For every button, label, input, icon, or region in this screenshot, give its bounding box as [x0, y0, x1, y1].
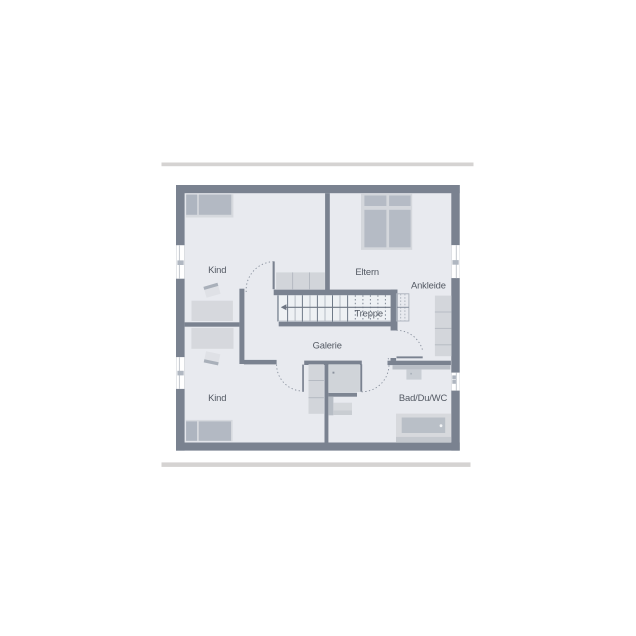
svg-text:Galerie: Galerie — [313, 339, 342, 350]
svg-text:Treppe: Treppe — [354, 307, 382, 318]
svg-text:Eltern: Eltern — [355, 266, 379, 277]
svg-text:Kind: Kind — [208, 264, 226, 275]
svg-text:Bad/Du/WC: Bad/Du/WC — [399, 392, 448, 403]
svg-text:Kind: Kind — [208, 392, 226, 403]
svg-text:Ankleide: Ankleide — [411, 279, 446, 290]
